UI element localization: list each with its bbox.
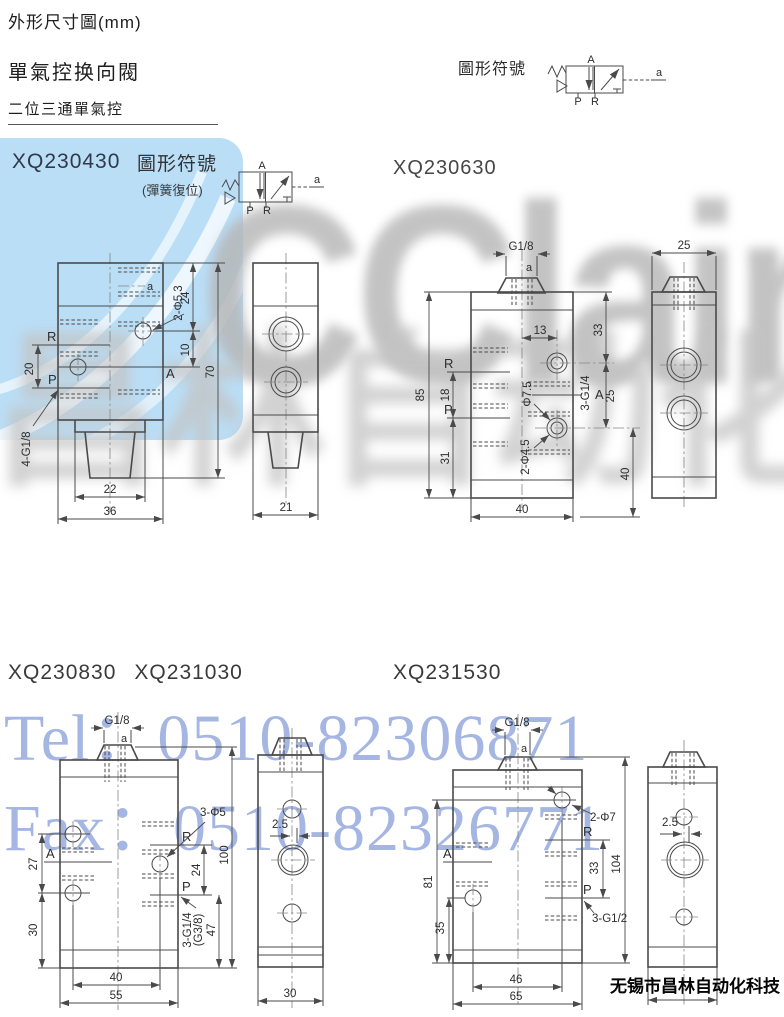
hole-callout: 2-Φ4.5 bbox=[520, 439, 532, 474]
dim-label: 85 bbox=[415, 389, 427, 402]
hole-callout: 2-Φ5.3 bbox=[173, 285, 185, 320]
xq231530-front-view: G1/8 a 2-Φ7 R P bbox=[423, 714, 630, 1010]
dim-label: 40 bbox=[516, 504, 529, 516]
thread-callout: G1/8 bbox=[105, 715, 130, 727]
thread-callout: 4-G1/8 bbox=[21, 431, 33, 466]
thread-callout: G1/8 bbox=[505, 717, 530, 729]
port-label: A bbox=[258, 160, 266, 172]
hole-callout: 2-Φ7 bbox=[590, 812, 616, 824]
pilot-label: a bbox=[521, 743, 528, 755]
dim-label: 36 bbox=[104, 506, 117, 518]
pilot-label: a bbox=[656, 67, 663, 79]
port-label: P bbox=[246, 205, 253, 217]
dim-label: 2.5 bbox=[272, 819, 288, 831]
valve-symbol-spring-return: A P R a bbox=[222, 160, 324, 217]
xq230630-side-view: 25 bbox=[652, 240, 716, 508]
port-label: P bbox=[182, 879, 191, 894]
dim-label: 2.5 bbox=[662, 817, 678, 829]
dim-label: 81 bbox=[423, 876, 435, 889]
pilot-label: a bbox=[314, 174, 321, 186]
valve-symbol-top: A P R a bbox=[548, 54, 666, 108]
port-label: P bbox=[444, 402, 453, 417]
xq230430-side-view: 21 bbox=[253, 253, 318, 520]
dim-label: 30 bbox=[284, 988, 297, 1000]
port-label: P bbox=[574, 96, 581, 108]
hole-callout: Φ7.5 bbox=[522, 381, 534, 406]
dim-label: 18 bbox=[440, 389, 452, 402]
dim-label: 21 bbox=[280, 502, 293, 514]
xq230630-front-view: G1/8 a R P bbox=[415, 241, 640, 522]
port-label: A bbox=[46, 846, 55, 861]
dim-label: 35 bbox=[435, 922, 447, 935]
port-label: R bbox=[47, 329, 56, 344]
pilot-label: a bbox=[147, 281, 154, 293]
pilot-triangle-icon bbox=[225, 192, 235, 204]
xq230830-front-view: G1/8 a A bbox=[28, 712, 237, 1010]
pilot-label: a bbox=[526, 262, 533, 274]
dim-label: 31 bbox=[440, 452, 452, 465]
xq231530-side-view: 2.5 bbox=[648, 740, 717, 1005]
dim-label: 33 bbox=[589, 862, 601, 875]
dim-label: 33 bbox=[593, 324, 605, 337]
dim-label: 40 bbox=[110, 972, 123, 984]
port-label: P bbox=[48, 372, 57, 387]
dim-label: 20 bbox=[24, 363, 36, 376]
dim-label: 104 bbox=[611, 854, 623, 874]
dim-label: 25 bbox=[605, 390, 617, 403]
hole-callout: 3-Φ5 bbox=[200, 807, 226, 819]
dim-label: 22 bbox=[104, 484, 117, 496]
dim-label: 13 bbox=[534, 325, 547, 337]
xq230430-front-view: a R P A 20 bbox=[21, 253, 225, 524]
port-label: P bbox=[583, 882, 592, 897]
thread-callout: G1/8 bbox=[509, 241, 534, 253]
dim-label: 65 bbox=[510, 991, 523, 1003]
thread-callout: 3-G1/2 bbox=[592, 913, 627, 925]
port-label: R bbox=[591, 96, 599, 108]
port-label: A bbox=[166, 366, 175, 381]
xq230830-side-view: 2.5 30 bbox=[258, 728, 323, 1008]
dim-label: 70 bbox=[205, 366, 217, 379]
dim-label: 24 bbox=[191, 863, 203, 876]
pilot-label: a bbox=[121, 733, 128, 745]
port-label: R bbox=[263, 205, 271, 217]
dim-label: 10 bbox=[180, 344, 192, 357]
port-label: A bbox=[595, 387, 604, 402]
dim-label: 40 bbox=[620, 468, 632, 481]
company-name: 无锡市昌林自动化科技 bbox=[610, 972, 780, 997]
dim-label: 55 bbox=[110, 990, 123, 1002]
port-label: R bbox=[444, 356, 453, 371]
dim-label: 30 bbox=[28, 924, 40, 937]
dim-label: 100 bbox=[219, 845, 231, 864]
port-label: A bbox=[443, 846, 452, 861]
port-label: A bbox=[587, 54, 595, 66]
dimension-drawings: A P R a A P R a bbox=[0, 0, 784, 1017]
dim-label: 25 bbox=[678, 240, 691, 252]
thread-callout: 3-G1/4 bbox=[580, 375, 592, 411]
datasheet-page: CClair 昌林自动化 Tel：0510-82306871 Fax：0510-… bbox=[0, 0, 784, 1017]
thread-callout: (G3/8) bbox=[193, 914, 205, 947]
dim-label: 27 bbox=[28, 858, 40, 871]
dim-label: 47 bbox=[206, 924, 218, 937]
port-label: R bbox=[583, 824, 592, 839]
dim-label: 46 bbox=[510, 974, 523, 986]
